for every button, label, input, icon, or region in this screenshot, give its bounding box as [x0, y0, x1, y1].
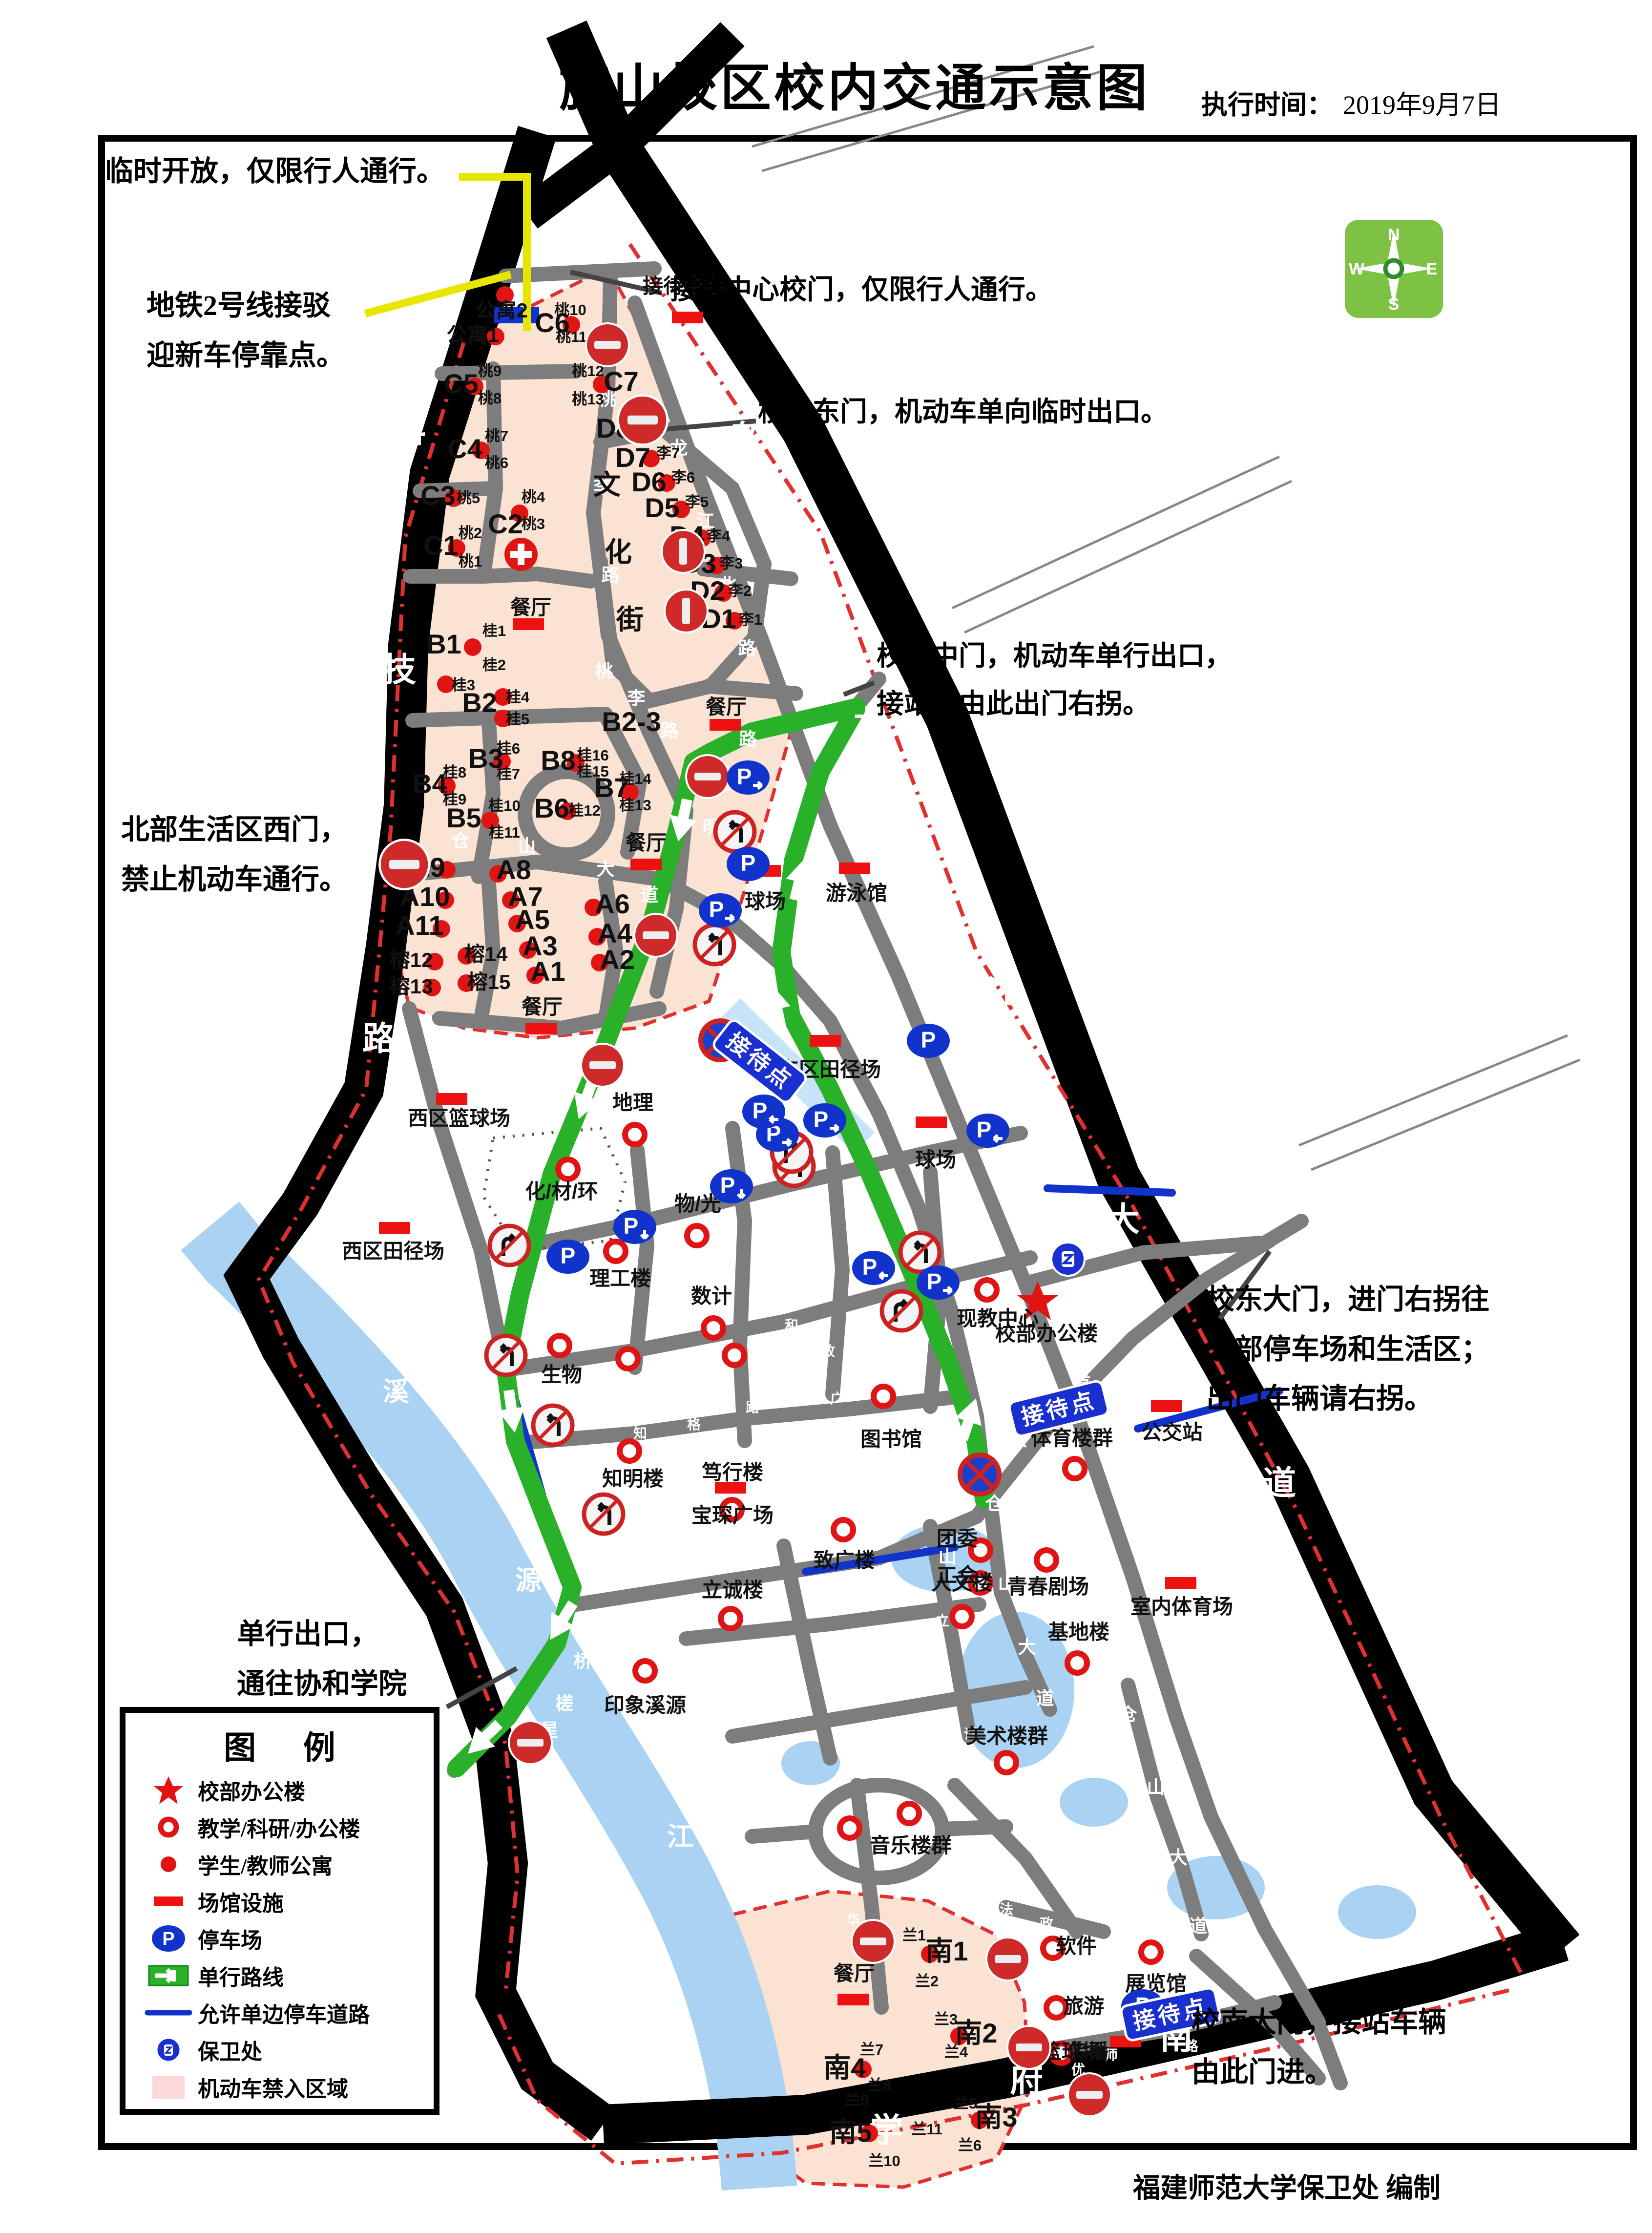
road-name-char: 致 — [821, 1344, 836, 1359]
teaching-building-ring-icon — [625, 1125, 645, 1144]
sign-bar — [589, 1061, 616, 1069]
map-label: 校部办公楼 — [995, 1322, 1098, 1345]
legend-icon-svg — [142, 1997, 195, 2028]
road-name-char: 路 — [661, 721, 679, 741]
road-name-char: 大 — [1170, 1848, 1188, 1868]
road-name-char: 路 — [1334, 1934, 1367, 1971]
map-label: 李2 — [728, 582, 752, 599]
venue-bar-icon — [710, 719, 741, 731]
legend-item-label: 校部办公楼 — [198, 1774, 305, 1806]
no-entry-sign-icon — [618, 395, 667, 444]
road-name-char: 街 — [616, 604, 644, 635]
annotation-line: 校东大门，进门右拐往 — [1206, 1275, 1489, 1325]
no-stopping-sign-icon — [960, 1455, 999, 1494]
teaching-building-ring-icon — [997, 1753, 1016, 1772]
legend-icon-svg — [142, 2071, 195, 2103]
road-name-char: 仓 — [452, 831, 470, 851]
legend-icon-svg: P — [142, 1923, 195, 1954]
road-name-char: 技 — [383, 652, 416, 689]
map-label: 兰11 — [911, 2121, 942, 2138]
annotation-metro-shuttle: 地铁2号线接驳迎新车停靠点。 — [146, 281, 345, 380]
parking-letter: P — [737, 764, 752, 789]
parking-letter: P — [814, 1107, 829, 1132]
venue-bar-icon — [810, 1035, 841, 1047]
map-label: 餐厅 — [510, 596, 551, 619]
map-label: 桂1 — [482, 622, 506, 639]
teaching-building-ring-icon — [1141, 1942, 1161, 1962]
road-name-char: 仓 — [1119, 1705, 1138, 1725]
no-entry-sign-icon — [986, 1938, 1029, 1980]
legend-item: 单行路线 — [125, 1957, 434, 1994]
map-label: 理工楼 — [589, 1267, 651, 1290]
road-name-char: 德 — [537, 1089, 555, 1109]
map-label: 桂15 — [577, 763, 608, 780]
legend-item-label: 允许单边停车道路 — [198, 1997, 370, 2028]
road-name-char: 山 — [518, 836, 536, 856]
road-name-char: 路 — [1040, 1827, 1054, 1842]
map-label: 桂16 — [577, 747, 608, 764]
map-label: 西区篮球场 — [408, 1107, 510, 1130]
map-label: 音乐楼群 — [870, 1834, 952, 1857]
legend-bar-icon — [139, 1886, 198, 1917]
legend-pinkzone-icon — [139, 2071, 198, 2103]
road-name-char: 乌 — [727, 420, 760, 457]
road-name-char: 溪 — [383, 1377, 410, 1407]
no-entry-sign-icon — [686, 755, 729, 798]
road-name-char: 桥 — [574, 1651, 592, 1671]
teaching-building-ring-icon — [899, 1804, 919, 1823]
road-name-char: 和 — [785, 1318, 798, 1333]
no-entry-sign-icon — [379, 840, 429, 889]
map-label: 榕12 — [390, 948, 433, 971]
no-entry-sign-icon — [852, 1920, 895, 1963]
road-name-char: 江 — [667, 1822, 693, 1852]
venue-bar-icon — [1151, 1400, 1182, 1412]
annotation-line: 禁止机动车通行。 — [121, 855, 348, 905]
road-name-char: 李 — [627, 688, 646, 708]
road-name-char: 西 — [987, 1860, 1001, 1875]
map-label: 数计 — [691, 1285, 732, 1307]
no-turn-sign-icon — [584, 1495, 623, 1534]
no-turn-sign-icon — [695, 925, 734, 964]
apartment-dot-icon — [464, 638, 481, 656]
road-name-char: 路 — [738, 638, 757, 658]
legend-icon-svg — [142, 2034, 195, 2065]
map-label: 餐厅 — [522, 995, 563, 1018]
annotation-nw-gate: 北部生活区西门，禁止机动车通行。 — [121, 805, 348, 904]
road-name-char: 艺 — [1007, 1789, 1021, 1804]
compass: N S W E — [1344, 219, 1444, 321]
teaching-building-ring-icon — [840, 1818, 859, 1838]
parking-sign-icon: P — [803, 1103, 846, 1138]
road-name-char: 路 — [797, 1470, 811, 1485]
parking-sign-icon: P — [727, 847, 770, 881]
sign-bar — [694, 773, 721, 780]
map-label: 生物 — [541, 1363, 582, 1386]
map-label: 桂4 — [506, 689, 530, 706]
sign-bar — [389, 860, 419, 869]
annotation-line: 接站车由此出门右拐。 — [877, 680, 1232, 728]
map-label: 基地楼 — [1048, 1621, 1109, 1643]
road-name-char: 明 — [496, 1188, 514, 1208]
legend-oneway-icon — [139, 1960, 198, 1991]
no-entry-sign-icon — [1068, 2073, 1111, 2116]
road-name-char: 源 — [515, 1566, 542, 1595]
annotation-line: 北部停车场和生活区； — [1206, 1325, 1489, 1374]
sign-bar — [627, 416, 658, 424]
parking-sign-icon: P — [907, 1024, 950, 1058]
road-name-char: 路 — [844, 1473, 858, 1488]
pinkzone-glyph — [152, 2076, 185, 2099]
sign-bar — [643, 931, 669, 939]
road-name-char: 笃 — [792, 1422, 806, 1437]
teaching-building-ring-icon — [606, 1242, 626, 1261]
venue-bar-icon — [916, 1116, 947, 1128]
map-label: 旅游 — [1063, 1995, 1104, 2018]
legend-star-icon — [139, 1774, 198, 1806]
map-label: B8 — [541, 745, 576, 776]
map-label: 兰6 — [958, 2137, 982, 2154]
parking-sign-icon: P — [852, 1251, 895, 1285]
map-label: 桃6 — [485, 454, 508, 471]
map-label: 桃8 — [478, 390, 502, 407]
annotation-oneway-exit: 单行出口，通往协和学院 — [237, 1609, 407, 1708]
road-name-char: 游 — [937, 1770, 950, 1786]
parking-letter: P — [862, 1254, 878, 1280]
star-glyph — [154, 1776, 183, 1804]
map-label: 美术楼群 — [966, 1725, 1048, 1748]
map-label: 兰8 — [868, 2077, 891, 2094]
annotation-line: 临时开放，仅限行人通行。 — [105, 147, 445, 196]
road-name-char: 大 — [1018, 1637, 1036, 1657]
map-label: 李1 — [739, 611, 762, 628]
map-label: 桃9 — [478, 362, 502, 379]
teaching-building-ring-icon — [1037, 1550, 1056, 1570]
legend-icon-svg — [142, 1812, 195, 1843]
annotation-east-main-gate: 校东大门，进门右拐往北部停车场和生活区；出门车辆请右拐。 — [1206, 1275, 1489, 1424]
map-label: 桃11 — [556, 328, 587, 345]
map-label: B2-3 — [602, 706, 661, 737]
annotation-line: 地铁2号线接驳 — [146, 281, 345, 331]
legend-item-label: 教学/科研/办公楼 — [198, 1812, 360, 1843]
map-label: 兰7 — [860, 2041, 883, 2058]
road-name-char: 源 — [708, 1666, 721, 1682]
map-label: 球场 — [915, 1148, 956, 1171]
legend-icon-svg — [142, 1960, 195, 1991]
legend-item-label: 学生/教师公寓 — [198, 1849, 333, 1880]
legend-item: 机动车禁入区域 — [125, 2068, 434, 2106]
parking-sign-icon: P — [727, 760, 770, 795]
teaching-building-ring-icon — [550, 1336, 569, 1355]
parking-letter: P — [927, 1269, 942, 1294]
teaching-building-ring-icon — [687, 1226, 707, 1245]
parking-letter: P — [624, 1213, 639, 1239]
road-name-char: 路 — [1073, 1900, 1087, 1915]
map-label: 餐厅 — [706, 695, 747, 718]
map-label: 南3 — [975, 2102, 1017, 2132]
map-label: C4 — [447, 433, 482, 464]
map-label: A2 — [600, 944, 635, 975]
legend-item: 教学/科研/办公楼 — [125, 1809, 434, 1846]
map-label: 兰10 — [868, 2152, 900, 2170]
map-label: 游泳馆 — [826, 882, 887, 905]
footer-credit: 福建师范大学保卫处 编制 — [1133, 2166, 1441, 2206]
legend-item: 保卫处 — [125, 2031, 434, 2068]
road-name-char: 南 — [915, 1881, 928, 1896]
page-title: 旗山校区校内交通示意图 — [513, 46, 1196, 120]
teaching-building-ring-icon — [952, 1607, 972, 1626]
annotation-line: 单行出口， — [237, 1609, 407, 1659]
compass-w: W — [1349, 260, 1365, 278]
compass-s: S — [1388, 295, 1400, 314]
road-name-char: 协 — [705, 1352, 718, 1368]
map-label: A11 — [395, 910, 444, 941]
ring-glyph — [161, 1819, 176, 1835]
road-name-char: 海 — [549, 1213, 563, 1228]
no-entry-sign-icon — [586, 323, 629, 366]
sign-bar — [860, 1938, 886, 1945]
map-label: 印象溪源 — [604, 1694, 686, 1717]
compass-rose-icon: N S W E — [1344, 219, 1444, 319]
legend-icon-svg — [142, 1774, 195, 1806]
legend-blueline-icon — [139, 1997, 198, 2028]
map-label: 兰4 — [944, 2043, 968, 2061]
map-label: 榕13 — [390, 975, 433, 998]
road-name-char: 大 — [1107, 1201, 1140, 1238]
teaching-building-ring-icon — [725, 1346, 744, 1365]
sign-bar — [1076, 2091, 1103, 2099]
map-label: A8 — [496, 854, 531, 885]
map-label: C1 — [423, 530, 459, 561]
medical-cross-icon — [504, 538, 538, 571]
road-name-char: 龙 — [879, 842, 898, 862]
sign-bar — [594, 341, 621, 349]
map-label: 团委 — [937, 1527, 978, 1550]
teaching-building-ring-icon — [1067, 1653, 1087, 1673]
legend-dot-icon — [139, 1849, 198, 1880]
map-label: D5 — [645, 492, 680, 523]
parking-letter: P — [753, 1098, 768, 1123]
map-label: C2 — [488, 508, 523, 539]
map-label: 兰2 — [915, 1973, 939, 1990]
map-label: 西区田径场 — [342, 1240, 444, 1263]
road-name-char: 桃 — [595, 661, 613, 681]
legend-item: 场馆设施 — [125, 1883, 434, 1920]
parking-sign-icon: P — [710, 1169, 753, 1203]
annotation-line: 由此门进。 — [1192, 2047, 1446, 2097]
parking-letter: P — [741, 850, 756, 876]
map-label: B4 — [412, 768, 447, 799]
road-name-char: 江 — [986, 974, 1019, 1011]
annotation-line: 通往协和学院 — [237, 1659, 407, 1709]
map-label: 桃1 — [459, 553, 482, 570]
legend-items: 校部办公楼教学/科研/办公楼学生/教师公寓场馆设施P停车场单行路线允许单边停车道… — [125, 1771, 434, 2106]
security-office-icon — [1051, 1243, 1085, 1276]
road-name-char: 路 — [743, 1747, 757, 1762]
road-name-char: 化 — [605, 537, 632, 568]
no-entry-sign-icon — [509, 1721, 552, 1764]
map-label: 室内体育场 — [1130, 1595, 1233, 1618]
road-name-char: 文 — [593, 469, 621, 500]
road-name-char: 路 — [602, 565, 620, 585]
no-turn-sign-icon — [715, 812, 754, 851]
map-label: 公交站 — [1141, 1421, 1203, 1444]
legend-item: 校部办公楼 — [125, 1771, 434, 1809]
road-name-char: 路 — [739, 729, 758, 749]
map-label: 桃5 — [457, 489, 480, 506]
venue-bar-icon — [525, 1023, 557, 1034]
map-label: 桂14 — [619, 770, 651, 787]
map-label: 桂7 — [497, 765, 520, 782]
map-label: 桂2 — [482, 656, 506, 674]
map-label: 李3 — [719, 555, 743, 572]
map-label: 桂5 — [506, 711, 529, 728]
map-label: 兰1 — [902, 1927, 926, 1944]
map-label: 化/材/环 — [525, 1180, 598, 1203]
map-label: 立诚楼 — [702, 1579, 763, 1601]
p-letter: P — [162, 1929, 174, 1949]
road-name-char: 广 — [830, 1391, 844, 1406]
page: 科技路乌龙江大道学府南路龙江北路龙江中桃李路桃李路仓山大道仓山路德明德明旗山大道… — [0, 0, 1652, 2233]
annotation-temp-open: 临时开放，仅限行人通行。 — [105, 147, 445, 196]
annotation-line: 接待中心校门，仅限行人通行。 — [670, 266, 1053, 314]
map-label: 李7 — [656, 444, 680, 462]
sign-bar — [682, 598, 690, 624]
teaching-building-ring-icon — [704, 1318, 723, 1338]
teaching-building-ring-icon — [618, 1349, 638, 1369]
map-label: 桃10 — [554, 301, 586, 318]
teaching-building-ring-icon — [874, 1387, 893, 1406]
map-label: 人文楼 — [931, 1571, 993, 1594]
map-label: 桃4 — [522, 488, 545, 506]
sign-bar — [1016, 2043, 1042, 2051]
map-label: 兰5 — [954, 2095, 977, 2112]
map-label: C5 — [443, 368, 479, 399]
annotation-line: 北部生活区西门， — [121, 805, 348, 855]
road-name-char: 立 — [936, 1613, 949, 1628]
road-name-char: 道 — [1190, 1916, 1208, 1936]
no-turn-sign-icon — [882, 1291, 921, 1330]
map-label: B6 — [534, 793, 569, 823]
road-name-char: 中 — [977, 1074, 995, 1095]
parking-sign-icon: P — [966, 1114, 1009, 1148]
road-name-char: 旗 — [868, 1569, 886, 1589]
no-entry-sign-icon — [581, 1044, 624, 1087]
map-label: 软件 — [1056, 1935, 1097, 1958]
no-turn-sign-icon — [490, 1226, 529, 1265]
teaching-building-ring-icon — [620, 1441, 639, 1461]
teaching-building-ring-icon — [558, 1159, 578, 1179]
map-label: 桂11 — [489, 824, 520, 841]
annotation-east-mid-gate: 校东中门，机动车单行出口，接站车由此出门右拐。 — [877, 632, 1232, 728]
teaching-building-ring-icon — [721, 1609, 740, 1628]
map-label: 笃行楼 — [702, 1461, 763, 1484]
legend-parking-icon: P — [139, 1923, 198, 1954]
no-turn-sign-icon — [486, 1336, 525, 1375]
venue-bar-icon — [436, 1093, 467, 1105]
map-label: 公寓1 — [446, 323, 499, 346]
parking-letter: P — [709, 897, 724, 922]
annotation-line: 迎新车停靠点。 — [146, 331, 345, 380]
map-label: 李6 — [671, 469, 695, 486]
parking-letter: P — [921, 1027, 936, 1053]
legend-item: 学生/教师公寓 — [125, 1846, 434, 1883]
venue-bar-icon — [630, 859, 662, 870]
venue-bar-icon — [837, 1994, 869, 2005]
map-label: 致广楼 — [814, 1549, 875, 1572]
road-name-char: 科 — [393, 412, 426, 449]
map-label: 兰9 — [845, 2091, 869, 2108]
road-name-char: 道 — [1036, 1688, 1054, 1708]
teaching-building-ring-icon — [1065, 1459, 1085, 1478]
road-name-char: 疆 — [620, 1177, 634, 1192]
teaching-building-ring-icon — [635, 1661, 655, 1681]
legend-title: 图 例 — [125, 1722, 434, 1769]
road-name-char: 山 — [1147, 1777, 1165, 1797]
annotation-line: 校东中门，机动车单行出口， — [877, 632, 1232, 680]
parking-sign-icon: P — [613, 1210, 656, 1244]
road-name-char: 道 — [1263, 1465, 1296, 1502]
sign-bar — [995, 1955, 1021, 1963]
venue-bar-icon — [839, 863, 870, 874]
annotation-small-east-gate: 校小东门，机动车单向临时出口。 — [758, 388, 1168, 436]
legend-item: P停车场 — [125, 1920, 434, 1957]
road-name-char: 槎 — [556, 1693, 574, 1713]
parking-sign-icon: P — [546, 1240, 589, 1274]
road-name-char: 路 — [746, 1400, 760, 1415]
no-entry-sign-icon — [1007, 2026, 1050, 2069]
legend-box: 图 例 校部办公楼教学/科研/办公楼学生/教师公寓场馆设施P停车场单行路线允许单… — [120, 1707, 439, 2115]
medical-cross-v — [518, 544, 524, 565]
annotation-line: 校南大门，接站车辆 — [1192, 1998, 1446, 2047]
legend-item-label: 单行路线 — [198, 1960, 284, 1991]
execution-time-label: 执行时间： — [1201, 90, 1333, 120]
map-label: 桃7 — [485, 427, 508, 444]
legend-ring-icon — [139, 1812, 198, 1843]
map-label: 地理 — [612, 1091, 653, 1114]
map-label: 兰3 — [934, 2011, 958, 2028]
map-label: 桂13 — [619, 797, 651, 814]
venue-bar-icon — [379, 1222, 410, 1234]
parking-sign-icon: P — [917, 1265, 960, 1300]
annotation-line: 校小东门，机动车单向临时出口。 — [758, 388, 1168, 436]
road-name-char: 江 — [929, 958, 947, 978]
road-name-char: 明 — [657, 1492, 671, 1507]
annotation-line: 出门车辆请右拐。 — [1206, 1374, 1489, 1424]
map-label: 桂10 — [488, 797, 520, 814]
map-label: 图书馆 — [860, 1428, 922, 1451]
road-name-char: 仓 — [985, 1494, 1004, 1514]
parking-letter: P — [561, 1243, 576, 1268]
legend-item-label: 保卫处 — [198, 2034, 262, 2065]
map-label: 桂8 — [443, 764, 466, 781]
map-label: 球场 — [745, 890, 786, 913]
execution-time-value: 2019年9月7日 — [1343, 90, 1501, 120]
compass-e: E — [1426, 260, 1438, 278]
map-label: 李5 — [685, 493, 709, 510]
dot-glyph — [161, 1856, 176, 1872]
map-label: 桂9 — [443, 791, 466, 808]
no-entry-sign-icon — [634, 914, 677, 957]
map-label: 餐厅 — [626, 831, 667, 854]
compass-n: N — [1388, 226, 1400, 244]
legend-security-icon — [139, 2034, 198, 2065]
map-label: B1 — [426, 629, 461, 659]
parking-letter: P — [720, 1173, 735, 1198]
execution-time: 执行时间：2019年9月7日 — [1201, 83, 1501, 122]
legend-item-label: 场馆设施 — [198, 1886, 284, 1917]
road-name-char: 道 — [641, 885, 659, 905]
